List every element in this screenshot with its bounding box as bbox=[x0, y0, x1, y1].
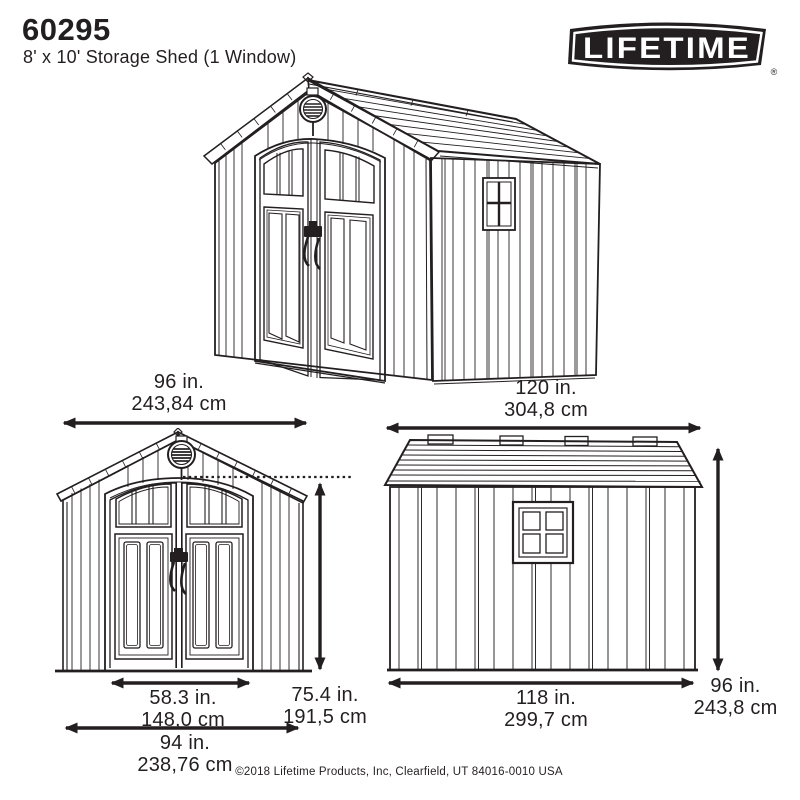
dim-roof-length: 120 in. 304,8 cm bbox=[421, 377, 671, 421]
dim-value-cm: 243,8 cm bbox=[683, 697, 788, 719]
side-window bbox=[513, 502, 573, 563]
dim-front-overall-width: 96 in. 243,84 cm bbox=[54, 371, 304, 415]
double-doors bbox=[105, 478, 253, 671]
dim-door-opening-width: 58.3 in. 148,0 cm bbox=[108, 687, 258, 731]
side-wall bbox=[390, 487, 695, 670]
perspective-view-drawing bbox=[168, 72, 623, 407]
dim-base-length: 118 in. 299,7 cm bbox=[446, 687, 646, 731]
roof bbox=[385, 435, 702, 487]
dim-value-cm: 299,7 cm bbox=[446, 709, 646, 731]
dim-value-in: 94 in. bbox=[85, 732, 285, 754]
copyright-notice: ©2018 Lifetime Products, Inc, Clearfield… bbox=[199, 766, 599, 778]
dim-overall-height: 96 in. 243,8 cm bbox=[683, 675, 788, 719]
product-name: 8' x 10' Storage Shed (1 Window) bbox=[23, 47, 296, 68]
side-wall bbox=[431, 158, 600, 384]
side-view-drawing bbox=[375, 430, 710, 680]
front-wall bbox=[215, 92, 432, 380]
registered-trademark-icon: ® bbox=[771, 67, 778, 77]
front-view-drawing bbox=[36, 428, 316, 678]
model-number: 60295 bbox=[22, 12, 111, 48]
spec-sheet-page: 60295 8' x 10' Storage Shed (1 Window) L… bbox=[0, 0, 800, 800]
dim-value-in: 96 in. bbox=[54, 371, 304, 393]
dim-wall-height: 75.4 in. 191,5 cm bbox=[270, 684, 380, 728]
dim-value-in: 96 in. bbox=[683, 675, 788, 697]
dim-value-cm: 191,5 cm bbox=[270, 706, 380, 728]
logo-wordmark: LIFETIME bbox=[583, 32, 751, 65]
door-handles-icon bbox=[304, 221, 322, 269]
dim-value-cm: 148,0 cm bbox=[108, 709, 258, 731]
double-doors bbox=[255, 139, 385, 383]
dim-value-cm: 243,84 cm bbox=[54, 393, 304, 415]
gable-roof bbox=[308, 80, 600, 168]
side-window bbox=[483, 178, 515, 230]
dim-value-in: 120 in. bbox=[421, 377, 671, 399]
dim-value-in: 118 in. bbox=[446, 687, 646, 709]
lifetime-logo: LIFETIME ® bbox=[560, 14, 784, 78]
dim-value-in: 75.4 in. bbox=[270, 684, 380, 706]
dim-value-in: 58.3 in. bbox=[108, 687, 258, 709]
dim-value-cm: 304,8 cm bbox=[421, 399, 671, 421]
